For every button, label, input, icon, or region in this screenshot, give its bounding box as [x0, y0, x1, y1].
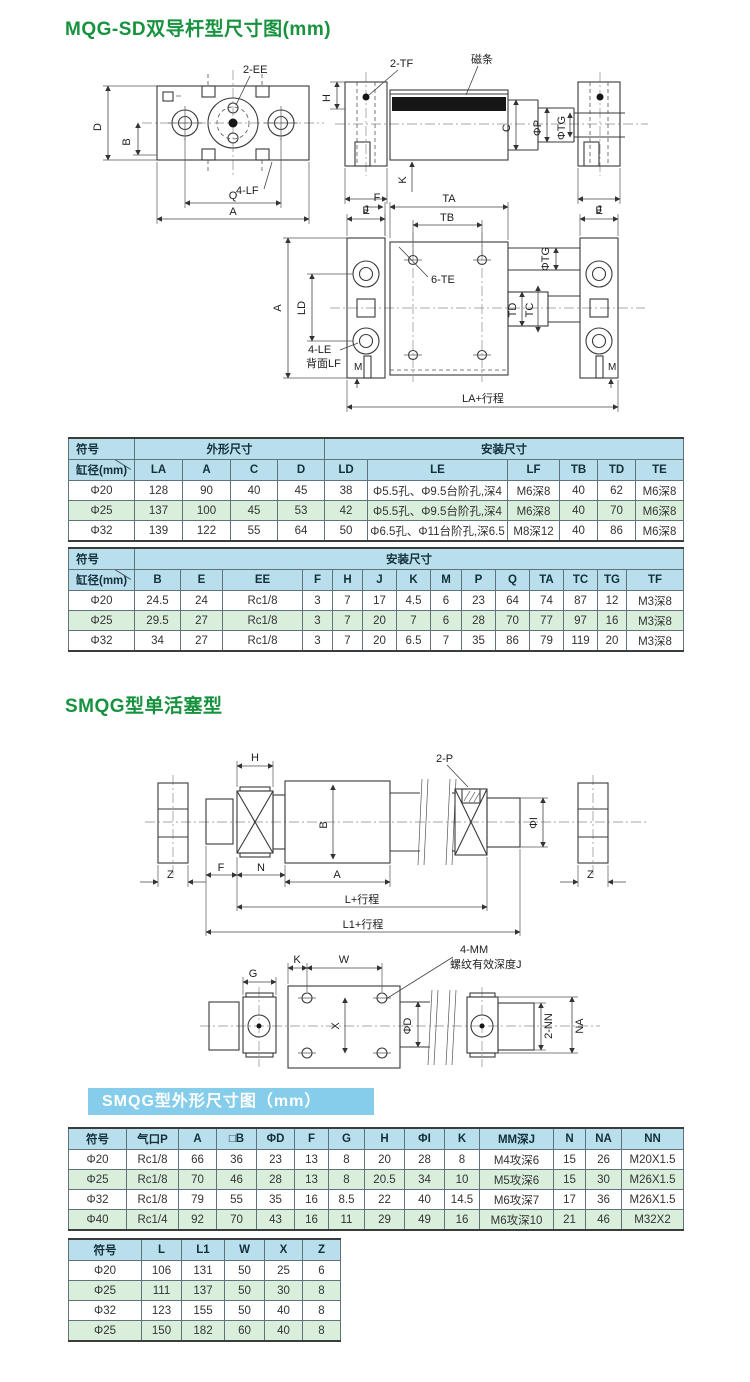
- dim-label-k: K: [397, 176, 409, 184]
- dim-label-tc: TC: [524, 303, 536, 318]
- table-cell: Φ25: [69, 1321, 142, 1342]
- table-cell: Φ6.5孔、Φ11台阶孔,深6.5: [368, 521, 508, 542]
- table-cell: 74: [530, 591, 564, 611]
- table-cell: Rc1/8: [223, 631, 303, 652]
- table-cell: Rc1/8: [127, 1170, 179, 1190]
- header-cell: 符号: [69, 548, 135, 570]
- table-cell: 14.5: [445, 1190, 480, 1210]
- header-cell: TA: [530, 570, 564, 591]
- table-cell: 86: [598, 521, 636, 542]
- table-row: Φ40Rc1/49270431611294916M6攻深102146M32X2: [69, 1210, 684, 1231]
- table-cell: 20: [365, 1150, 405, 1170]
- table-cell: 70: [179, 1170, 217, 1190]
- table-cell: 86: [496, 631, 530, 652]
- table-group-header-row: 符号 外形尺寸 安装尺寸: [69, 438, 684, 460]
- header-cell: LA: [135, 460, 183, 481]
- dim-label-ta: TA: [442, 193, 456, 205]
- header-cell: Z: [303, 1239, 341, 1261]
- dim-label-h: H: [321, 94, 333, 102]
- page-title-mqg: MQG-SD双导杆型尺寸图(mm): [65, 14, 331, 41]
- table-cell: M5攻深6: [480, 1170, 554, 1190]
- table-cell: 50: [225, 1281, 265, 1301]
- table-cell: Φ25: [69, 501, 135, 521]
- table-cell: Φ32: [69, 1301, 142, 1321]
- table-cell: 3: [303, 591, 333, 611]
- header-cell: P: [462, 570, 496, 591]
- table-cell: 150: [142, 1321, 182, 1342]
- table-cell: Φ25: [69, 1170, 127, 1190]
- dim-label-ld: LD: [296, 301, 308, 315]
- header-cell: TB: [560, 460, 598, 481]
- table-cell: 53: [278, 501, 325, 521]
- smqg-drawing: Z B 2-P ΦI Z H: [0, 735, 750, 1085]
- table-cell: 40: [560, 481, 598, 501]
- header-cell: NA: [586, 1128, 622, 1150]
- table-cell: 50: [225, 1301, 265, 1321]
- table-cell: 55: [231, 521, 278, 542]
- table-cell: Rc1/8: [223, 591, 303, 611]
- table-cell: 3: [303, 611, 333, 631]
- table-cell: 34: [405, 1170, 445, 1190]
- smqg-bottom-view: X ΦD 2-NN NA K W G: [200, 954, 600, 1068]
- header-cell: EE: [223, 570, 303, 591]
- header-cell: 气口P: [127, 1128, 179, 1150]
- table-row: Φ32139122556450Φ6.5孔、Φ11台阶孔,深6.5M8深12408…: [69, 521, 684, 542]
- table-cell: 13: [295, 1170, 329, 1190]
- dim-label-n: N: [257, 862, 265, 874]
- table-cell: 50: [325, 521, 368, 542]
- mqg-bottom-view: ΦTG TD TC F TA TB E E 6-TE LD A 4-LE: [272, 192, 645, 412]
- mqg-front-view: D B 2-EE 4-LF Q A: [92, 64, 324, 224]
- table-cell: 15: [554, 1170, 586, 1190]
- header-cell: 安装尺寸: [135, 548, 684, 570]
- table-row: Φ2529.527Rc1/83720762870779716M3深8: [69, 611, 684, 631]
- header-cell: □B: [217, 1128, 257, 1150]
- table-cell: 43: [257, 1210, 295, 1231]
- dim-label-d: D: [92, 123, 104, 131]
- table-cell: Φ25: [69, 611, 135, 631]
- dim-label-phitg2: ΦTG: [540, 247, 552, 271]
- table-cell: 60: [225, 1321, 265, 1342]
- table-cell: 20: [363, 631, 397, 652]
- label-thread-depth: 螺纹有效深度J: [450, 957, 522, 971]
- label-magnet-strip: 磁条: [471, 52, 493, 66]
- catalog-page: { "titles": { "mqg": "MQG-SD双导杆型尺寸图(mm)"…: [0, 0, 750, 1382]
- table-cell: 7: [333, 631, 363, 652]
- dim-label-m-right: M: [608, 362, 616, 373]
- table-row: Φ32Rc1/8795535168.5224014.5M6攻深71736M26X…: [69, 1190, 684, 1210]
- dim-label-la-stroke: LA+行程: [462, 392, 504, 405]
- header-cell: TE: [636, 460, 684, 481]
- dim-label-c: C: [501, 124, 513, 132]
- header-cell: Q: [496, 570, 530, 591]
- table-cell: 182: [182, 1321, 225, 1342]
- dim-label-phitg: ΦTG: [556, 116, 568, 140]
- header-cell: L1: [182, 1239, 225, 1261]
- table-cell: 8: [445, 1150, 480, 1170]
- dim-label-2nn: 2-NN: [543, 1013, 555, 1039]
- table-cell: 42: [325, 501, 368, 521]
- table-cell: 40: [265, 1301, 303, 1321]
- table-cell: Φ5.5孔、Φ9.5台阶孔,深4: [368, 481, 508, 501]
- header-cell: 安装尺寸: [325, 438, 684, 460]
- table-cell: 128: [135, 481, 183, 501]
- table-cell: 55: [217, 1190, 257, 1210]
- table-cell: 77: [530, 611, 564, 631]
- table-cell: 70: [598, 501, 636, 521]
- dim-label-m-left: M: [354, 362, 362, 373]
- table-cell: 137: [182, 1281, 225, 1301]
- smqg-dimension-table-2: 符号LL1WXZ Φ2010613150256Φ2511113750308Φ32…: [68, 1238, 341, 1342]
- table-cell: M4攻深6: [480, 1150, 554, 1170]
- table-cell: Φ32: [69, 521, 135, 542]
- table-cell: M6深8: [636, 501, 684, 521]
- table-cell: 23: [462, 591, 496, 611]
- mqg-dimension-table-1: 符号 外形尺寸 安装尺寸 缸径(mm)LAACDLDLELFTBTDTE Φ20…: [68, 437, 684, 542]
- table-cell: M3深8: [627, 611, 684, 631]
- table-cell: 35: [257, 1190, 295, 1210]
- dim-label-tb: TB: [440, 212, 454, 224]
- table-cell: M6深8: [636, 481, 684, 501]
- dim-label-phii: ΦI: [528, 817, 540, 829]
- dim-label-f: F: [374, 192, 381, 204]
- dim-label-a: A: [229, 206, 237, 218]
- dim-label-b2: B: [318, 821, 330, 828]
- table-cell: 8: [303, 1301, 341, 1321]
- table-cell: 92: [179, 1210, 217, 1231]
- table-cell: 64: [496, 591, 530, 611]
- table-row: Φ2012890404538Φ5.5孔、Φ9.5台阶孔,深4M6深84062M6…: [69, 481, 684, 501]
- table-cell: M6攻深10: [480, 1210, 554, 1231]
- dim-label-l-stroke: L+行程: [345, 893, 380, 906]
- dim-label-b: B: [121, 138, 133, 145]
- table-cell: 122: [183, 521, 231, 542]
- table-cell: 21: [554, 1210, 586, 1231]
- header-cell: 缸径(mm): [69, 460, 135, 481]
- table-cell: 15: [554, 1150, 586, 1170]
- dim-label-h2: H: [251, 752, 259, 764]
- header-cell: H: [365, 1128, 405, 1150]
- header-cell: K: [445, 1128, 480, 1150]
- header-cell: H: [333, 570, 363, 591]
- dim-label-4le: 4-LE: [308, 344, 331, 356]
- table-cell: 27: [181, 631, 223, 652]
- table-cell: 28: [462, 611, 496, 631]
- table-cell: 97: [564, 611, 598, 631]
- header-cell: NN: [622, 1128, 684, 1150]
- table-cell: 7: [431, 631, 462, 652]
- table-cell: 46: [217, 1170, 257, 1190]
- table-cell: 13: [295, 1150, 329, 1170]
- dim-label-x: X: [330, 1022, 342, 1030]
- table-cell: M6深8: [508, 481, 560, 501]
- table-cell: Φ20: [69, 591, 135, 611]
- dim-label-q: Q: [229, 190, 238, 202]
- dim-label-e-left: E: [362, 205, 369, 217]
- dim-label-a2: A: [272, 304, 284, 312]
- header-cell: K: [397, 570, 431, 591]
- table-cell: Rc1/8: [127, 1190, 179, 1210]
- table-cell: 38: [325, 481, 368, 501]
- table-cell: 45: [231, 501, 278, 521]
- table-cell: 29: [365, 1210, 405, 1231]
- table-cell: 79: [179, 1190, 217, 1210]
- header-cell: F: [295, 1128, 329, 1150]
- table-cell: 6: [431, 611, 462, 631]
- table-cell: 25: [265, 1261, 303, 1281]
- table-cell: Φ25: [69, 1281, 142, 1301]
- table-cell: 16: [445, 1210, 480, 1231]
- table-cell: 87: [564, 591, 598, 611]
- header-cell: TD: [598, 460, 636, 481]
- header-cell: G: [329, 1128, 365, 1150]
- dim-label-a3: A: [333, 869, 341, 881]
- table-row: Φ323427Rc1/837206.5735867911920M3深8: [69, 631, 684, 652]
- table-cell: 35: [462, 631, 496, 652]
- table-cell: 139: [135, 521, 183, 542]
- header-cell: J: [363, 570, 397, 591]
- page-title-smqg: SMQG型单活塞型: [65, 691, 223, 718]
- table-cell: Rc1/4: [127, 1210, 179, 1231]
- dim-label-td: TD: [507, 303, 519, 318]
- table-cell: M3深8: [627, 591, 684, 611]
- dim-label-l1-stroke: L1+行程: [343, 918, 384, 931]
- table-cell: 36: [586, 1190, 622, 1210]
- table-cell: 7: [397, 611, 431, 631]
- table-row: Φ3212315550408: [69, 1301, 341, 1321]
- dim-label-k2: K: [293, 954, 301, 966]
- dim-label-z-left: Z: [167, 869, 174, 881]
- table-cell: 28: [405, 1150, 445, 1170]
- header-cell: W: [225, 1239, 265, 1261]
- table-cell: 28: [257, 1170, 295, 1190]
- table-cell: 40: [231, 481, 278, 501]
- header-cell: L: [142, 1239, 182, 1261]
- table-cell: Φ20: [69, 481, 135, 501]
- table-cell: M6攻深7: [480, 1190, 554, 1210]
- table-cell: Φ20: [69, 1261, 142, 1281]
- header-cell: 符号: [69, 1128, 127, 1150]
- header-cell: N: [554, 1128, 586, 1150]
- table-row: Φ25137100455342Φ5.5孔、Φ9.5台阶孔,深4M6深84070M…: [69, 501, 684, 521]
- mqg-side-view: 2-TF 磁条 H C ΦP ΦTG K J: [321, 52, 648, 216]
- table-cell: 50: [225, 1261, 265, 1281]
- smqg-side-view: Z B 2-P ΦI Z H: [140, 752, 648, 971]
- table-cell: 79: [530, 631, 564, 652]
- dim-label-phip: ΦP: [532, 120, 544, 136]
- table-cell: 16: [295, 1190, 329, 1210]
- table-cell: M6深8: [636, 521, 684, 542]
- header-cell: C: [231, 460, 278, 481]
- table-cell: 90: [183, 481, 231, 501]
- header-cell: 符号: [69, 438, 135, 460]
- dim-label-phid: ΦD: [402, 1018, 414, 1035]
- table-cell: 40: [560, 521, 598, 542]
- table-cell: 30: [265, 1281, 303, 1301]
- table-cell: 27: [181, 611, 223, 631]
- dim-label-w: W: [339, 954, 350, 966]
- table-cell: 40: [265, 1321, 303, 1342]
- table-cell: Φ32: [69, 631, 135, 652]
- table-cell: 4.5: [397, 591, 431, 611]
- dim-label-6te: 6-TE: [431, 274, 455, 286]
- header-cell: X: [265, 1239, 303, 1261]
- table-cell: 8.5: [329, 1190, 365, 1210]
- table-cell: 62: [598, 481, 636, 501]
- table-cell: 49: [405, 1210, 445, 1231]
- header-cell: 符号: [69, 1239, 142, 1261]
- header-cell: B: [135, 570, 181, 591]
- dim-label-e-right: E: [595, 205, 602, 217]
- table-cell: 20: [598, 631, 627, 652]
- dim-label-2p: 2-P: [436, 753, 453, 765]
- table-header-row: 符号LL1WXZ: [69, 1239, 341, 1261]
- table-cell: Rc1/8: [127, 1150, 179, 1170]
- table-cell: 22: [365, 1190, 405, 1210]
- dim-label-4mm: 4-MM: [460, 944, 488, 956]
- table-cell: 30: [586, 1170, 622, 1190]
- header-cell: F: [303, 570, 333, 591]
- table-cell: Φ32: [69, 1190, 127, 1210]
- table-cell: 40: [560, 501, 598, 521]
- table-cell: 20.5: [365, 1170, 405, 1190]
- header-cell: LE: [368, 460, 508, 481]
- dim-label-back-lf: 背面LF: [306, 356, 341, 370]
- table-cell: 155: [182, 1301, 225, 1321]
- table-cell: 70: [496, 611, 530, 631]
- table-row: Φ2511113750308: [69, 1281, 341, 1301]
- header-cell: M: [431, 570, 462, 591]
- table-sub-header-row: 缸径(mm)BEEEFHJKMPQTATCTGTF: [69, 570, 684, 591]
- table-cell: 8: [329, 1170, 365, 1190]
- header-cell: TF: [627, 570, 684, 591]
- mqg-sd-drawing: D B 2-EE 4-LF Q A 2-TF 磁条: [0, 52, 750, 430]
- header-cell: E: [181, 570, 223, 591]
- table-cell: M3深8: [627, 631, 684, 652]
- table-cell: 8: [329, 1150, 365, 1170]
- table-sub-header-row: 缸径(mm)LAACDLDLELFTBTDTE: [69, 460, 684, 481]
- table-cell: 34: [135, 631, 181, 652]
- table-cell: 7: [333, 591, 363, 611]
- table-cell: Φ20: [69, 1150, 127, 1170]
- table-cell: 106: [142, 1261, 182, 1281]
- table-cell: 111: [142, 1281, 182, 1301]
- table-cell: M6深8: [508, 501, 560, 521]
- table-header-row: 符号气口PA□BΦDFGHΦIKMM深JNNANN: [69, 1128, 684, 1150]
- header-cell: D: [278, 460, 325, 481]
- table-cell: 29.5: [135, 611, 181, 631]
- table-cell: 100: [183, 501, 231, 521]
- table-cell: 24: [181, 591, 223, 611]
- table-row: Φ25Rc1/870462813820.53410M5攻深61530M26X1.…: [69, 1170, 684, 1190]
- header-cell: TC: [564, 570, 598, 591]
- header-cell: MM深J: [480, 1128, 554, 1150]
- table-cell: 3: [303, 631, 333, 652]
- table-cell: Rc1/8: [223, 611, 303, 631]
- table-cell: 6.5: [397, 631, 431, 652]
- mqg-dimension-table-2: 符号 安装尺寸 缸径(mm)BEEEFHJKMPQTATCTGTF Φ2024.…: [68, 547, 684, 652]
- table-cell: M8深12: [508, 521, 560, 542]
- table-cell: 7: [333, 611, 363, 631]
- table-group-header-row: 符号 安装尺寸: [69, 548, 684, 570]
- table-cell: M20X1.5: [622, 1150, 684, 1170]
- header-cell: 缸径(mm): [69, 570, 135, 591]
- smqg-dimension-table-1: 符号气口PA□BΦDFGHΦIKMM深JNNANN Φ20Rc1/8663623…: [68, 1127, 684, 1231]
- dim-label-na: NA: [574, 1018, 586, 1034]
- table-cell: 66: [179, 1150, 217, 1170]
- header-cell: ΦI: [405, 1128, 445, 1150]
- table-cell: 70: [217, 1210, 257, 1231]
- dim-label-2ee: 2-EE: [243, 64, 267, 76]
- table-cell: M26X1.5: [622, 1170, 684, 1190]
- dim-label-2tf: 2-TF: [390, 58, 414, 70]
- table-row: Φ2010613150256: [69, 1261, 341, 1281]
- table-cell: 46: [586, 1210, 622, 1231]
- table-row: Φ20Rc1/866362313820288M4攻深61526M20X1.5: [69, 1150, 684, 1170]
- table-cell: 20: [363, 611, 397, 631]
- table-cell: 16: [295, 1210, 329, 1231]
- table-cell: 6: [303, 1261, 341, 1281]
- table-cell: 64: [278, 521, 325, 542]
- table-row: Φ2515018260408: [69, 1321, 341, 1342]
- header-cell: LD: [325, 460, 368, 481]
- table-cell: Φ40: [69, 1210, 127, 1231]
- table-cell: Φ5.5孔、Φ9.5台阶孔,深4: [368, 501, 508, 521]
- header-cell: A: [179, 1128, 217, 1150]
- table-cell: 12: [598, 591, 627, 611]
- dim-label-z-right: Z: [587, 869, 594, 881]
- smqg-dimension-banner: SMQG型外形尺寸图（mm）: [88, 1088, 374, 1115]
- header-cell: A: [183, 460, 231, 481]
- table-cell: 123: [142, 1301, 182, 1321]
- dim-label-f2: F: [218, 862, 225, 874]
- table-row: Φ2024.524Rc1/837174.562364748712M3深8: [69, 591, 684, 611]
- header-cell: ΦD: [257, 1128, 295, 1150]
- table-cell: 24.5: [135, 591, 181, 611]
- table-cell: 17: [554, 1190, 586, 1210]
- dim-label-g: G: [249, 968, 258, 980]
- table-cell: 16: [598, 611, 627, 631]
- table-cell: 8: [303, 1281, 341, 1301]
- header-cell: LF: [508, 460, 560, 481]
- table-cell: 40: [405, 1190, 445, 1210]
- header-cell: 外形尺寸: [135, 438, 325, 460]
- table-cell: 10: [445, 1170, 480, 1190]
- table-cell: 8: [303, 1321, 341, 1342]
- table-cell: 131: [182, 1261, 225, 1281]
- table-cell: 6: [431, 591, 462, 611]
- table-cell: 36: [217, 1150, 257, 1170]
- table-cell: M32X2: [622, 1210, 684, 1231]
- dim-label-4lf: 4-LF: [236, 185, 259, 197]
- table-cell: 11: [329, 1210, 365, 1231]
- header-cell: TG: [598, 570, 627, 591]
- table-cell: 26: [586, 1150, 622, 1170]
- table-cell: 23: [257, 1150, 295, 1170]
- table-cell: 45: [278, 481, 325, 501]
- table-cell: 17: [363, 591, 397, 611]
- table-cell: 137: [135, 501, 183, 521]
- table-cell: 119: [564, 631, 598, 652]
- table-cell: M26X1.5: [622, 1190, 684, 1210]
